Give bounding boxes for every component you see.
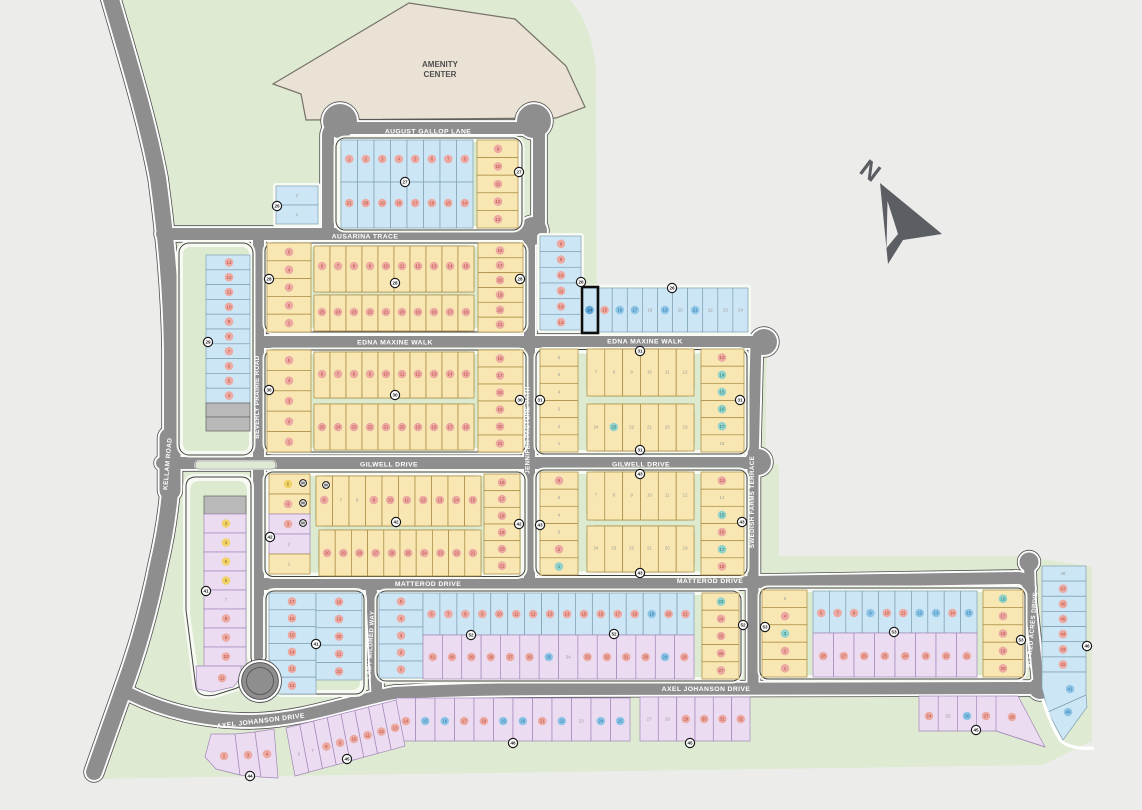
svg-text:24: 24 — [593, 546, 598, 551]
svg-text:24: 24 — [719, 616, 724, 621]
svg-text:16: 16 — [498, 390, 503, 395]
svg-text:21: 21 — [470, 551, 475, 556]
svg-text:28: 28 — [392, 281, 398, 286]
svg-text:10: 10 — [496, 164, 501, 169]
svg-text:11: 11 — [400, 372, 405, 377]
svg-text:29: 29 — [663, 655, 668, 660]
svg-text:17: 17 — [720, 547, 725, 552]
svg-text:14: 14 — [587, 308, 592, 313]
svg-text:45: 45 — [344, 757, 350, 762]
svg-text:12: 12 — [683, 493, 688, 498]
svg-text:10: 10 — [497, 612, 502, 617]
svg-text:23: 23 — [611, 425, 616, 430]
svg-text:10: 10 — [647, 370, 652, 375]
svg-text:19: 19 — [663, 308, 668, 313]
svg-text:15: 15 — [423, 719, 428, 724]
svg-text:43: 43 — [637, 571, 643, 576]
svg-text:19: 19 — [380, 201, 385, 206]
svg-text:31: 31 — [637, 349, 643, 354]
svg-text:20: 20 — [337, 634, 342, 639]
svg-text:10: 10 — [647, 493, 652, 498]
svg-text:53: 53 — [1018, 638, 1024, 643]
svg-text:22: 22 — [337, 669, 342, 674]
svg-text:48: 48 — [1061, 571, 1066, 576]
svg-text:30: 30 — [517, 398, 523, 403]
svg-text:31: 31 — [720, 717, 725, 722]
svg-text:12: 12 — [227, 275, 232, 280]
svg-text:41: 41 — [430, 655, 435, 660]
svg-text:17: 17 — [290, 599, 295, 604]
svg-text:AUGUST GALLOP LANE: AUGUST GALLOP LANE — [385, 129, 471, 136]
svg-text:16: 16 — [720, 530, 725, 535]
svg-text:42: 42 — [516, 522, 522, 527]
svg-text:52: 52 — [740, 623, 746, 628]
svg-text:27: 27 — [984, 714, 989, 719]
svg-text:37: 37 — [508, 655, 513, 660]
svg-text:28: 28 — [665, 717, 670, 722]
svg-text:24: 24 — [336, 425, 341, 430]
svg-text:30: 30 — [702, 717, 707, 722]
svg-text:14: 14 — [403, 719, 408, 724]
svg-text:40: 40 — [1066, 710, 1071, 715]
svg-text:17: 17 — [498, 373, 503, 378]
svg-text:16: 16 — [1001, 596, 1006, 601]
svg-text:47: 47 — [1061, 586, 1066, 591]
svg-text:24: 24 — [336, 310, 341, 315]
svg-text:17: 17 — [632, 308, 637, 313]
svg-text:EDNA MAXINE WALK: EDNA MAXINE WALK — [607, 339, 683, 346]
svg-text:30: 30 — [266, 388, 272, 393]
svg-text:20: 20 — [666, 612, 671, 617]
svg-text:25: 25 — [320, 425, 325, 430]
svg-text:25: 25 — [719, 634, 724, 639]
svg-text:11: 11 — [559, 288, 564, 293]
svg-text:19: 19 — [1001, 649, 1006, 654]
svg-text:29: 29 — [341, 551, 346, 556]
svg-text:13: 13 — [720, 478, 725, 483]
svg-text:18: 18 — [632, 612, 637, 617]
svg-text:26: 26 — [965, 714, 970, 719]
svg-text:22: 22 — [944, 654, 949, 659]
svg-text:EDNA MAXINE WALK: EDNA MAXINE WALK — [357, 340, 433, 347]
svg-text:15: 15 — [470, 498, 475, 503]
svg-text:21: 21 — [647, 546, 652, 551]
svg-text:18: 18 — [1001, 631, 1006, 636]
svg-text:23: 23 — [352, 310, 357, 315]
svg-text:10: 10 — [224, 654, 229, 659]
svg-text:42: 42 — [267, 535, 273, 540]
svg-text:31: 31 — [737, 398, 743, 403]
svg-text:26: 26 — [862, 654, 867, 659]
svg-text:19: 19 — [501, 719, 506, 724]
svg-text:23: 23 — [723, 308, 728, 313]
svg-text:45: 45 — [973, 728, 979, 733]
svg-text:28: 28 — [682, 655, 687, 660]
svg-text:22: 22 — [368, 425, 373, 430]
svg-text:23: 23 — [923, 654, 928, 659]
svg-text:13: 13 — [437, 498, 442, 503]
svg-text:17: 17 — [462, 719, 467, 724]
svg-text:20: 20 — [363, 201, 368, 206]
svg-text:15: 15 — [720, 513, 725, 518]
svg-text:17: 17 — [1001, 614, 1006, 619]
svg-text:19: 19 — [649, 612, 654, 617]
svg-text:21: 21 — [498, 322, 503, 327]
svg-text:16: 16 — [617, 308, 622, 313]
svg-text:13: 13 — [548, 612, 553, 617]
svg-text:29: 29 — [683, 717, 688, 722]
svg-text:12: 12 — [416, 372, 421, 377]
svg-text:11: 11 — [496, 182, 501, 187]
svg-text:21: 21 — [500, 563, 505, 568]
svg-text:14: 14 — [448, 372, 453, 377]
svg-text:19: 19 — [416, 310, 421, 315]
svg-text:GILWELL DRIVE: GILWELL DRIVE — [612, 462, 670, 469]
svg-text:15: 15 — [446, 201, 451, 206]
svg-text:CENTER: CENTER — [424, 70, 457, 79]
svg-text:21: 21 — [347, 201, 352, 206]
svg-text:30: 30 — [392, 393, 398, 398]
svg-text:22: 22 — [368, 310, 373, 315]
svg-text:28: 28 — [1010, 715, 1015, 720]
svg-text:41: 41 — [1068, 687, 1073, 692]
svg-text:13: 13 — [432, 264, 437, 269]
svg-text:16: 16 — [598, 612, 603, 617]
svg-text:25: 25 — [618, 719, 623, 724]
svg-text:45: 45 — [1061, 617, 1066, 622]
svg-text:16: 16 — [290, 616, 295, 621]
svg-text:27: 27 — [402, 180, 408, 185]
svg-text:20: 20 — [520, 719, 525, 724]
svg-text:14: 14 — [462, 201, 467, 206]
svg-text:42: 42 — [393, 520, 399, 525]
svg-text:33: 33 — [585, 655, 590, 660]
svg-text:15: 15 — [464, 372, 469, 377]
svg-text:15: 15 — [602, 308, 607, 313]
svg-text:15: 15 — [720, 390, 725, 395]
svg-text:11: 11 — [665, 493, 670, 498]
svg-text:52: 52 — [611, 632, 617, 637]
svg-text:12: 12 — [683, 370, 688, 375]
svg-text:23: 23 — [611, 546, 616, 551]
svg-text:25: 25 — [320, 310, 325, 315]
svg-text:19: 19 — [683, 546, 688, 551]
svg-text:43: 43 — [1061, 647, 1066, 652]
svg-text:19: 19 — [337, 617, 342, 622]
svg-text:16: 16 — [500, 480, 505, 485]
svg-text:10: 10 — [384, 372, 389, 377]
svg-text:25: 25 — [406, 551, 411, 556]
svg-text:26: 26 — [274, 204, 280, 209]
svg-text:13: 13 — [227, 260, 232, 265]
svg-text:40: 40 — [450, 655, 455, 660]
svg-text:18: 18 — [432, 310, 437, 315]
svg-text:11: 11 — [665, 370, 670, 375]
svg-text:14: 14 — [950, 611, 955, 616]
svg-text:15: 15 — [290, 633, 295, 638]
svg-text:14: 14 — [565, 612, 570, 617]
svg-text:M: M — [301, 501, 305, 506]
svg-text:13: 13 — [496, 217, 501, 222]
svg-text:23: 23 — [352, 425, 357, 430]
svg-text:13: 13 — [432, 372, 437, 377]
svg-text:18: 18 — [432, 425, 437, 430]
svg-text:29: 29 — [205, 340, 211, 345]
svg-text:19: 19 — [416, 425, 421, 430]
svg-text:41: 41 — [203, 589, 209, 594]
svg-text:17: 17 — [498, 263, 503, 268]
svg-text:16: 16 — [464, 310, 469, 315]
svg-text:19: 19 — [683, 425, 688, 430]
svg-text:30: 30 — [325, 551, 330, 556]
svg-text:25: 25 — [946, 714, 951, 719]
svg-text:24: 24 — [927, 714, 932, 719]
svg-text:M: M — [301, 481, 305, 486]
svg-text:24: 24 — [738, 308, 743, 313]
svg-text:21: 21 — [683, 612, 688, 617]
svg-text:13: 13 — [393, 725, 398, 730]
svg-text:10: 10 — [227, 304, 232, 309]
svg-text:28: 28 — [517, 277, 523, 282]
svg-text:30: 30 — [643, 655, 648, 660]
svg-text:12: 12 — [379, 729, 384, 734]
svg-text:13: 13 — [934, 611, 939, 616]
svg-text:10: 10 — [388, 498, 393, 503]
svg-text:44: 44 — [1061, 632, 1066, 637]
svg-text:18: 18 — [720, 441, 725, 446]
svg-text:10: 10 — [384, 264, 389, 269]
svg-text:24: 24 — [903, 654, 908, 659]
svg-text:27: 27 — [373, 551, 378, 556]
svg-text:22: 22 — [454, 551, 459, 556]
svg-text:22: 22 — [629, 546, 634, 551]
svg-text:26: 26 — [389, 551, 394, 556]
svg-text:19: 19 — [498, 407, 503, 412]
svg-text:53: 53 — [762, 625, 768, 630]
svg-text:27: 27 — [516, 170, 522, 175]
svg-text:20: 20 — [665, 546, 670, 551]
svg-text:43: 43 — [739, 520, 745, 525]
svg-text:13: 13 — [559, 320, 564, 325]
svg-text:19: 19 — [500, 530, 505, 535]
svg-text:20: 20 — [665, 425, 670, 430]
svg-text:11: 11 — [400, 264, 405, 269]
svg-text:MATTEROD DRIVE: MATTEROD DRIVE — [677, 578, 743, 585]
svg-text:16: 16 — [442, 719, 447, 724]
svg-text:JENNIFER PASTURE PATH: JENNIFER PASTURE PATH — [525, 386, 532, 474]
svg-text:19: 19 — [498, 293, 503, 298]
svg-text:12: 12 — [496, 199, 501, 204]
svg-text:MATTEROD DRIVE: MATTEROD DRIVE — [395, 581, 461, 588]
svg-text:16: 16 — [464, 425, 469, 430]
svg-text:18: 18 — [498, 248, 503, 253]
svg-text:31: 31 — [637, 448, 643, 453]
svg-text:31: 31 — [624, 655, 629, 660]
svg-text:27: 27 — [647, 717, 652, 722]
svg-text:18: 18 — [647, 308, 652, 313]
svg-text:15: 15 — [464, 264, 469, 269]
svg-text:17: 17 — [720, 424, 725, 429]
svg-text:20: 20 — [498, 424, 503, 429]
svg-text:24: 24 — [422, 551, 427, 556]
svg-text:20: 20 — [498, 307, 503, 312]
svg-text:22: 22 — [708, 308, 713, 313]
svg-text:18: 18 — [498, 356, 503, 361]
svg-text:42: 42 — [1061, 662, 1066, 667]
svg-text:23: 23 — [579, 719, 584, 724]
svg-text:SWEDISH FARMS TERRACE: SWEDISH FARMS TERRACE — [749, 456, 756, 548]
svg-text:32: 32 — [604, 655, 609, 660]
svg-text:22: 22 — [629, 425, 634, 430]
svg-text:21: 21 — [540, 719, 545, 724]
svg-text:14: 14 — [290, 650, 295, 655]
svg-text:20: 20 — [500, 547, 505, 552]
svg-text:12: 12 — [421, 498, 426, 503]
svg-text:20: 20 — [400, 425, 405, 430]
svg-text:26: 26 — [719, 651, 724, 656]
svg-text:17: 17 — [448, 310, 453, 315]
svg-text:41: 41 — [313, 642, 319, 647]
svg-text:14: 14 — [720, 372, 725, 377]
svg-text:11: 11 — [405, 498, 410, 503]
svg-text:34: 34 — [566, 655, 571, 660]
svg-text:12: 12 — [531, 612, 536, 617]
svg-text:12: 12 — [290, 683, 295, 688]
svg-text:39: 39 — [469, 655, 474, 660]
svg-text:M: M — [324, 483, 328, 488]
svg-text:16: 16 — [498, 278, 503, 283]
svg-text:16: 16 — [720, 407, 725, 412]
svg-text:31: 31 — [537, 398, 543, 403]
svg-text:15: 15 — [581, 612, 586, 617]
svg-text:13: 13 — [720, 355, 725, 360]
svg-text:21: 21 — [384, 310, 389, 315]
svg-text:25: 25 — [882, 654, 887, 659]
svg-text:45: 45 — [687, 741, 693, 746]
svg-text:21: 21 — [384, 425, 389, 430]
svg-text:20: 20 — [1001, 666, 1006, 671]
svg-text:18: 18 — [481, 719, 486, 724]
svg-text:GILWELL DRIVE: GILWELL DRIVE — [360, 462, 418, 469]
svg-text:11: 11 — [220, 676, 225, 681]
svg-text:52: 52 — [468, 633, 474, 638]
svg-text:14: 14 — [720, 495, 725, 500]
svg-text:27: 27 — [841, 654, 846, 659]
svg-text:14: 14 — [454, 498, 459, 503]
svg-text:20: 20 — [400, 310, 405, 315]
svg-text:24: 24 — [593, 425, 598, 430]
svg-text:38: 38 — [488, 655, 493, 660]
svg-text:15: 15 — [966, 611, 971, 616]
svg-text:18: 18 — [396, 201, 401, 206]
svg-text:46: 46 — [1061, 602, 1066, 607]
svg-text:18: 18 — [500, 513, 505, 518]
svg-text:36: 36 — [527, 655, 532, 660]
svg-text:10: 10 — [559, 273, 564, 278]
svg-text:28: 28 — [266, 277, 272, 282]
svg-text:28: 28 — [821, 654, 826, 659]
svg-text:11: 11 — [514, 612, 519, 617]
svg-text:23: 23 — [719, 599, 724, 604]
svg-text:17: 17 — [615, 612, 620, 617]
svg-text:11: 11 — [365, 733, 370, 738]
svg-text:14: 14 — [448, 264, 453, 269]
svg-text:44: 44 — [247, 774, 253, 779]
svg-text:35: 35 — [546, 655, 551, 660]
svg-text:23: 23 — [438, 551, 443, 556]
svg-text:AXEL JOHANSON DRIVE: AXEL JOHANSON DRIVE — [662, 686, 751, 693]
svg-text:21: 21 — [337, 652, 342, 657]
svg-text:20: 20 — [678, 308, 683, 313]
svg-text:11: 11 — [901, 611, 906, 616]
svg-text:12: 12 — [917, 611, 922, 616]
svg-text:AMENITY: AMENITY — [422, 60, 459, 69]
svg-text:46: 46 — [510, 741, 516, 746]
svg-text:BEVERLY PRAIRIE ROAD: BEVERLY PRAIRIE ROAD — [254, 355, 261, 438]
svg-text:26: 26 — [669, 286, 675, 291]
svg-text:43: 43 — [537, 523, 543, 528]
svg-text:21: 21 — [647, 425, 652, 430]
svg-text:26: 26 — [578, 280, 584, 285]
svg-text:32: 32 — [738, 717, 743, 722]
svg-text:10: 10 — [884, 611, 889, 616]
svg-text:28: 28 — [357, 551, 362, 556]
svg-text:12: 12 — [416, 264, 421, 269]
svg-text:27: 27 — [719, 668, 724, 673]
svg-text:21: 21 — [498, 441, 503, 446]
svg-text:17: 17 — [500, 497, 505, 502]
svg-text:18: 18 — [720, 564, 725, 569]
svg-text:21: 21 — [693, 308, 698, 313]
svg-text:11: 11 — [227, 290, 232, 295]
svg-text:17: 17 — [413, 201, 418, 206]
svg-text:17: 17 — [448, 425, 453, 430]
svg-text:43: 43 — [637, 472, 643, 477]
svg-text:12: 12 — [559, 304, 564, 309]
svg-text:21: 21 — [964, 654, 969, 659]
svg-text:46: 46 — [1084, 644, 1090, 649]
svg-text:13: 13 — [290, 666, 295, 671]
svg-text:16: 16 — [429, 201, 434, 206]
svg-text:24: 24 — [598, 719, 603, 724]
svg-text:53: 53 — [891, 630, 897, 635]
svg-text:M: M — [301, 521, 305, 526]
svg-text:18: 18 — [337, 599, 342, 604]
svg-text:22: 22 — [559, 719, 564, 724]
svg-text:10: 10 — [351, 737, 356, 742]
svg-text:AUSARINA TRACE: AUSARINA TRACE — [332, 234, 399, 241]
